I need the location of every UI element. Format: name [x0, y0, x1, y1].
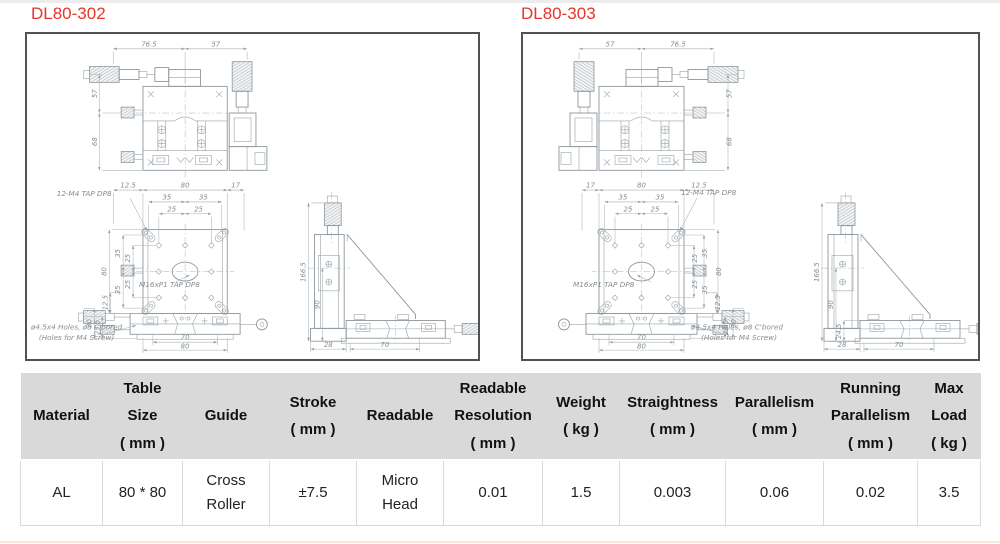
- col-header-straightness: Straightness ( mm ): [620, 373, 726, 460]
- dim-label: 35: [656, 194, 665, 202]
- cell-running-parallelism: 0.02: [824, 460, 918, 526]
- model-title-right: DL80-303: [521, 4, 596, 24]
- side-micrometer-top: [324, 196, 341, 235]
- bottom-divider: [0, 541, 1000, 543]
- annotation-label: 12-M4 TAP DP8: [681, 188, 737, 197]
- dim-label: 12.5: [714, 294, 722, 310]
- col-header-guide: Guide: [183, 373, 270, 460]
- col-header-table-size: Table Size ( mm ): [103, 373, 183, 460]
- dim-label: 80: [715, 267, 723, 276]
- dim-label: 17: [586, 182, 595, 190]
- dim-label: 80: [100, 267, 108, 276]
- col-header-readable-resolution: Readable Resolution ( mm ): [444, 373, 543, 460]
- left-adjuster-knob: [121, 265, 143, 276]
- col-header-max-load: Max Load ( kg ): [918, 373, 981, 460]
- dim-label: 80: [181, 343, 190, 351]
- dim-label: 25: [194, 205, 203, 213]
- dim-label: 70: [181, 334, 190, 342]
- dim-label: 90: [827, 300, 835, 309]
- cell-material: AL: [21, 460, 103, 526]
- col-header-running-parallelism: Running Parallelism ( mm ): [824, 373, 918, 460]
- cell-guide: Cross Roller: [183, 460, 270, 526]
- dim-label: 17: [231, 182, 240, 190]
- dim-label: 25: [691, 253, 699, 262]
- dim-label: 90: [313, 300, 321, 309]
- col-header-material: Material: [21, 373, 103, 460]
- dim-label: 24.5: [835, 323, 843, 339]
- annotation-label: (Holes for M4 Screw): [701, 333, 777, 342]
- dim-label: 80: [637, 343, 646, 351]
- dim-label: 166.5: [300, 262, 308, 282]
- top-view-art: [83, 49, 266, 179]
- side-lower-stage: [341, 320, 450, 343]
- col-header-stroke: Stroke ( mm ): [270, 373, 357, 460]
- dim-label: 35: [701, 285, 709, 294]
- annotation-label: ø4.5x4 Holes, ø8 C'bored: [690, 322, 783, 331]
- dim-label: 68: [91, 137, 99, 146]
- dim-label: 70: [380, 341, 389, 349]
- header-row: Material Table Size ( mm ) Guide Stroke …: [21, 373, 981, 460]
- annotation-label: (Holes for M4 Screw): [39, 333, 114, 342]
- annotation-label: M16xP1 TAP DP8: [139, 280, 200, 289]
- annotation-label: M16xP1 TAP DP8: [573, 280, 635, 289]
- model-title-left: DL80-302: [31, 4, 106, 24]
- dim-label: 25: [624, 205, 633, 213]
- cell-weight: 1.5: [543, 460, 620, 526]
- screw-holes: [158, 126, 206, 148]
- annotation-label: 12-M4 TAP DP8: [57, 189, 112, 198]
- dim-label: 68: [725, 137, 733, 146]
- dim-label: 80: [181, 182, 190, 190]
- cell-max-load: 3.5: [918, 460, 981, 526]
- dl80-303-drawing: 57 76.5 57 68 17 80 12.5 35 35 25 25 80 …: [523, 34, 978, 359]
- top-divider: [0, 0, 1000, 3]
- dim-label: 25: [124, 253, 132, 262]
- cell-readable: Micro Head: [357, 460, 444, 526]
- cell-parallelism: 0.06: [726, 460, 824, 526]
- col-header-readable: Readable: [357, 373, 444, 460]
- micrometer-horizontal: [83, 67, 200, 87]
- table-row: AL 80 * 80 Cross Roller ±7.5 Micro Head …: [21, 460, 981, 526]
- side-micrometer-right: [445, 323, 478, 334]
- cell-table-size: 80 * 80: [103, 460, 183, 526]
- cell-straightness: 0.003: [620, 460, 726, 526]
- col-header-parallelism: Parallelism ( mm ): [726, 373, 824, 460]
- page: DL80-302 DL80-303: [0, 0, 1000, 544]
- dim-label: 35: [619, 194, 628, 202]
- dim-label: 70: [637, 334, 646, 342]
- dim-label: 70: [895, 341, 904, 349]
- side-adjuster-knobs: [121, 107, 143, 162]
- dl80-302-drawing: 76.5 57 57 68 12.5 80 17 35 35 25 25 80 …: [27, 34, 478, 359]
- dim-label: 28: [838, 341, 847, 349]
- dim-label: 12.5: [101, 294, 109, 310]
- dim-label: 12.5: [120, 182, 136, 190]
- cell-stroke: ±7.5: [270, 460, 357, 526]
- dim-label: 25: [651, 205, 660, 213]
- dim-label: 57: [91, 89, 99, 98]
- dim-label: 76.5: [141, 40, 157, 48]
- dim-label: 28: [324, 341, 333, 349]
- drawing-box-dl80-303: 57 76.5 57 68 17 80 12.5 35 35 25 25 80 …: [521, 32, 980, 361]
- annotation-label: ø4.5x4 Holes, ø8 C'bored: [30, 322, 123, 331]
- dl80-302-labels: 76.5 57 57 68 12.5 80 17 35 35 25 25 80 …: [30, 40, 390, 350]
- dim-label: 25: [167, 205, 176, 213]
- dim-label: 35: [199, 193, 208, 201]
- dim-label: 57: [606, 40, 615, 48]
- stage-rod-right: [240, 319, 267, 330]
- dim-label: 166.5: [813, 262, 821, 282]
- dim-label: 25: [124, 279, 132, 288]
- dim-label: 35: [162, 193, 171, 201]
- dim-label: 25: [691, 279, 699, 288]
- cell-readable-resolution: 0.01: [444, 460, 543, 526]
- dim-label: 80: [637, 182, 646, 190]
- spec-table: Material Table Size ( mm ) Guide Stroke …: [20, 373, 981, 526]
- col-header-weight: Weight ( kg ): [543, 373, 620, 460]
- bottom-clamp-band: [153, 156, 211, 165]
- dim-label: 57: [725, 89, 733, 98]
- dim-label: 57: [211, 40, 220, 48]
- drawing-box-dl80-302: 76.5 57 57 68 12.5 80 17 35 35 25 25 80 …: [25, 32, 480, 361]
- dl80-303-labels: 57 76.5 57 68 17 80 12.5 35 35 25 25 80 …: [573, 40, 904, 350]
- dim-label: 35: [701, 248, 709, 257]
- side-view-art: [308, 192, 478, 352]
- dim-label: 35: [114, 248, 122, 257]
- dim-label: 35: [114, 285, 122, 294]
- micrometer-vertical: [229, 62, 267, 171]
- dim-label: 76.5: [670, 40, 686, 48]
